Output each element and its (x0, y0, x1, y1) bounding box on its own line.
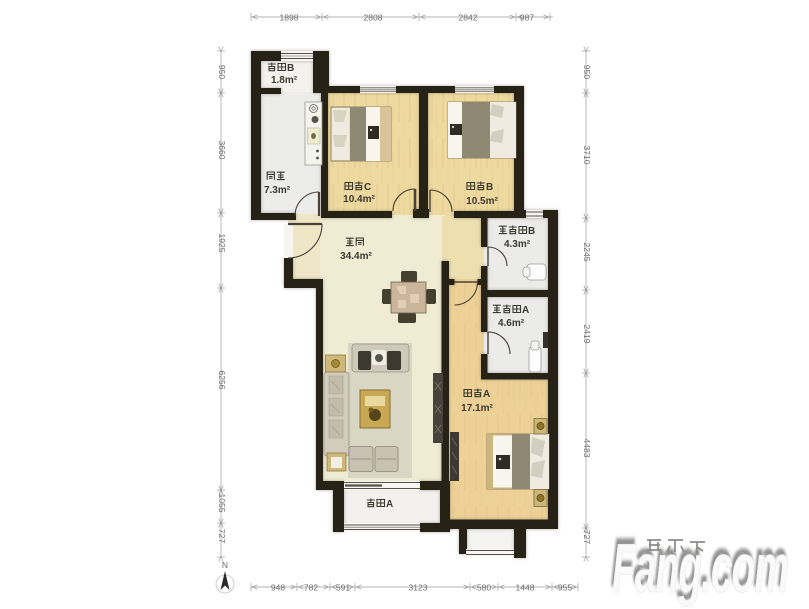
svg-text:3660: 3660 (217, 141, 227, 160)
svg-text:3123: 3123 (409, 583, 428, 593)
svg-text:34.4m²: 34.4m² (340, 251, 372, 262)
svg-text:B: B (287, 63, 294, 74)
svg-text:6256: 6256 (217, 371, 227, 390)
svg-text:591: 591 (336, 583, 350, 593)
svg-text:1.8m²: 1.8m² (271, 75, 298, 86)
svg-text:948: 948 (271, 583, 285, 593)
svg-text:987: 987 (520, 13, 534, 23)
svg-text:950: 950 (217, 65, 227, 79)
svg-text:2808: 2808 (364, 13, 383, 23)
svg-text:A: A (522, 305, 529, 316)
svg-text:10.4m²: 10.4m² (343, 194, 375, 205)
svg-text:2842: 2842 (459, 13, 478, 23)
svg-text:2419: 2419 (582, 325, 592, 344)
svg-text:727: 727 (217, 529, 227, 543)
svg-text:B: B (528, 226, 535, 237)
svg-text:4483: 4483 (582, 439, 592, 458)
svg-text:7.3m²: 7.3m² (264, 185, 291, 196)
svg-text:17.1m²: 17.1m² (461, 403, 493, 414)
svg-text:580: 580 (477, 583, 491, 593)
svg-text:1898: 1898 (280, 13, 299, 23)
svg-text:3710: 3710 (582, 146, 592, 165)
svg-text:A: A (483, 389, 490, 400)
svg-text:955: 955 (558, 583, 572, 593)
svg-text:950: 950 (582, 65, 592, 79)
svg-text:782: 782 (304, 583, 318, 593)
svg-text:N: N (222, 560, 228, 570)
svg-text:4.3m²: 4.3m² (504, 239, 531, 250)
svg-text:1448: 1448 (516, 583, 535, 593)
svg-text:4.6m²: 4.6m² (498, 318, 525, 329)
svg-text:2245: 2245 (582, 243, 592, 262)
svg-text:A: A (386, 499, 393, 510)
svg-text:B: B (486, 182, 493, 193)
svg-text:10.5m²: 10.5m² (466, 196, 498, 207)
svg-text:1925: 1925 (217, 234, 227, 253)
svg-text:727: 727 (582, 530, 592, 544)
svg-text:C: C (364, 182, 371, 193)
svg-text:1055: 1055 (217, 494, 227, 513)
